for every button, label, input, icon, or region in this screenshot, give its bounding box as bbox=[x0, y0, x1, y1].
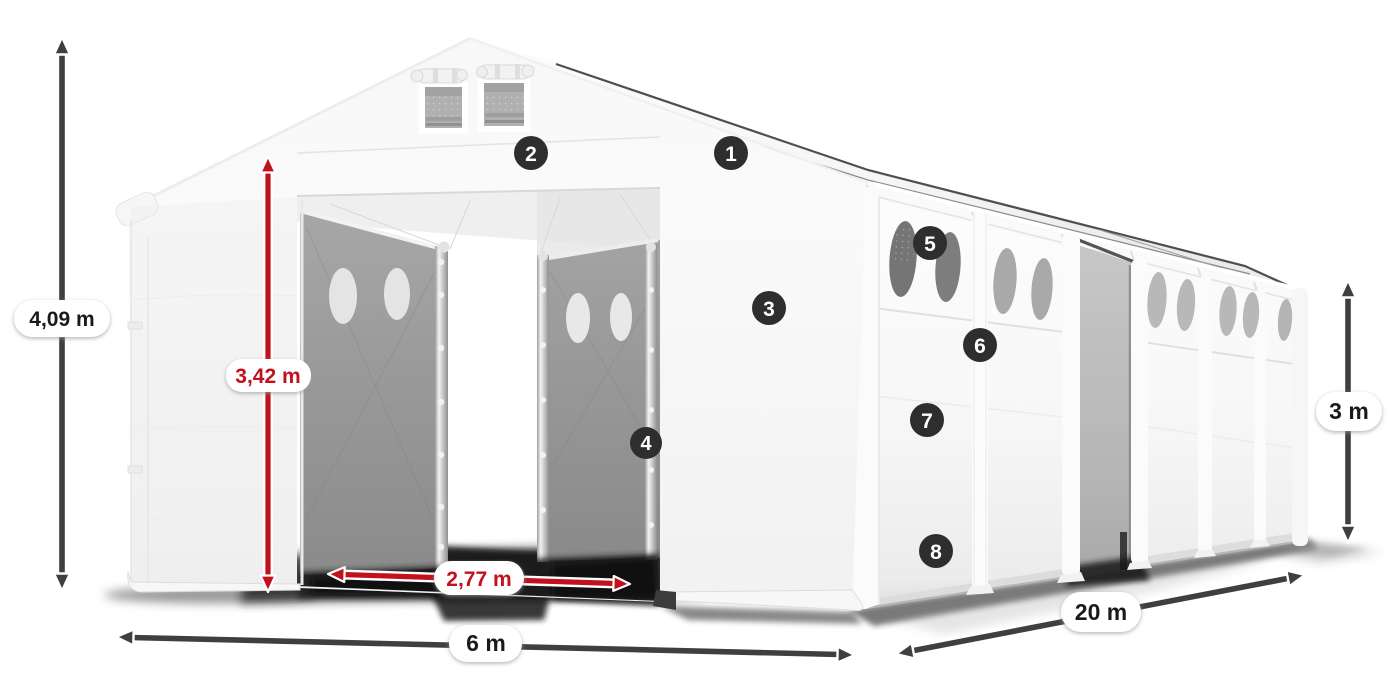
svg-text:20 m: 20 m bbox=[1075, 599, 1127, 625]
svg-text:4: 4 bbox=[640, 433, 652, 455]
svg-text:3,42 m: 3,42 m bbox=[235, 365, 300, 388]
svg-text:2,77 m: 2,77 m bbox=[446, 568, 511, 591]
svg-text:8: 8 bbox=[930, 541, 942, 564]
svg-text:2: 2 bbox=[525, 143, 537, 166]
svg-text:6 m: 6 m bbox=[466, 630, 506, 656]
svg-text:7: 7 bbox=[921, 410, 933, 433]
svg-text:4,09 m: 4,09 m bbox=[29, 308, 94, 331]
svg-text:1: 1 bbox=[725, 143, 737, 166]
svg-text:3 m: 3 m bbox=[1329, 398, 1369, 424]
svg-text:3: 3 bbox=[763, 298, 775, 321]
svg-text:6: 6 bbox=[974, 335, 986, 358]
svg-text:5: 5 bbox=[924, 233, 936, 256]
